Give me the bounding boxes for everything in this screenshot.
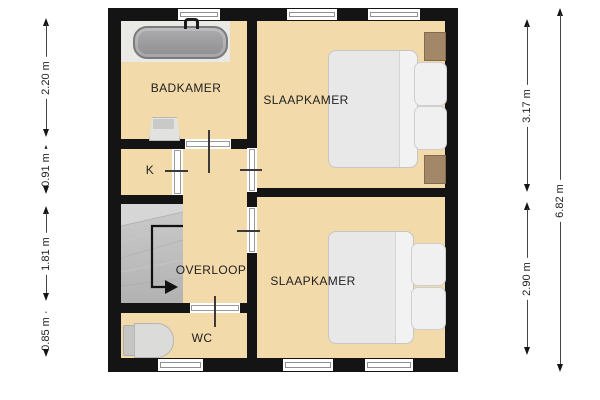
arrow-down-icon (43, 293, 49, 301)
dimension-label: 6.82 m (553, 180, 567, 222)
window-frame (370, 12, 418, 17)
staircase (121, 204, 183, 303)
window-frame (285, 362, 331, 368)
room-label-badkamer: BADKAMER (151, 81, 222, 95)
dimension-left-2-20: 2.20 m (39, 18, 53, 137)
door-wc-swing-mark (214, 296, 216, 327)
wall-exterior-right (445, 8, 458, 372)
pillow (411, 243, 446, 286)
window-bedroom-top-left (287, 9, 337, 20)
dimension-right-2-90: 2.90 m (520, 202, 534, 355)
pillow (414, 106, 447, 150)
wall-exterior-left (108, 8, 121, 372)
pillow (411, 287, 446, 330)
wall-bedroom-divider (247, 188, 445, 197)
dimension-label: 2.90 m (520, 258, 534, 300)
door-bedroom-bottom-swing-mark (237, 230, 260, 232)
arrow-down-icon (524, 184, 530, 192)
window-bedroom-bottom-right (365, 359, 413, 371)
room-label-slaapkamer-bottom: SLAAPKAMER (270, 274, 355, 288)
bathtub-faucet (184, 18, 199, 29)
window-bedroom-top-right (368, 9, 420, 20)
nightstand (424, 155, 446, 184)
room-label-wc: WC (192, 331, 213, 345)
pillow (414, 62, 447, 106)
staircase-drawing (121, 204, 183, 303)
wall-wc-north-left (121, 303, 190, 313)
arrow-down-icon (43, 349, 49, 357)
dimension-label: 0.91 m (39, 149, 53, 191)
window-frame (289, 12, 335, 17)
window-frame (180, 12, 218, 17)
room-label-slaapkamer-top: SLAAPKAMER (263, 93, 348, 107)
dimension-label: 3.17 m (520, 85, 534, 127)
door-leaf (174, 150, 181, 194)
sink-basin (153, 119, 174, 129)
wall-bathroom-south-right (231, 139, 248, 149)
dimension-left-1-81: 1.81 m (39, 206, 53, 301)
wall-wc-north-right (240, 303, 249, 313)
wall-closet-south (121, 195, 183, 204)
wall-hall-bedrooms-upper (247, 21, 257, 148)
bathtub (133, 26, 228, 59)
dimension-label: 1.81 m (39, 233, 53, 275)
window-frame (160, 362, 201, 368)
dimension-left-0-85: 0.85 m (39, 311, 53, 357)
door-closet (172, 149, 183, 195)
arrow-down-icon (43, 129, 49, 137)
arrow-down-icon (524, 347, 530, 355)
bed-duvet (328, 50, 418, 168)
window-wc (158, 359, 203, 371)
dimension-right-3-17: 3.17 m (520, 19, 534, 192)
nightstand (424, 32, 446, 61)
door-closet-swing-mark (165, 170, 188, 172)
room-label-overloop: OVERLOOP (176, 263, 247, 277)
door-bedroom-top-swing-mark (240, 169, 262, 171)
arrow-down-icon (43, 186, 49, 194)
dimension-label: 2.20 m (39, 57, 53, 99)
door-bathroom-swing-mark (208, 130, 210, 173)
arrow-down-icon (557, 364, 563, 372)
dimension-right-6-82: 6.82 m (553, 8, 567, 372)
room-label-kast: K (146, 163, 154, 177)
window-bedroom-bottom-left (283, 359, 333, 371)
floorplan-canvas: BADKAMER SLAAPKAMER K OVERLOOP WC SLAAPK… (0, 0, 600, 400)
toilet-bowl (134, 323, 174, 358)
dimension-left-0-91: 0.91 m (39, 145, 53, 194)
window-frame (367, 362, 411, 368)
